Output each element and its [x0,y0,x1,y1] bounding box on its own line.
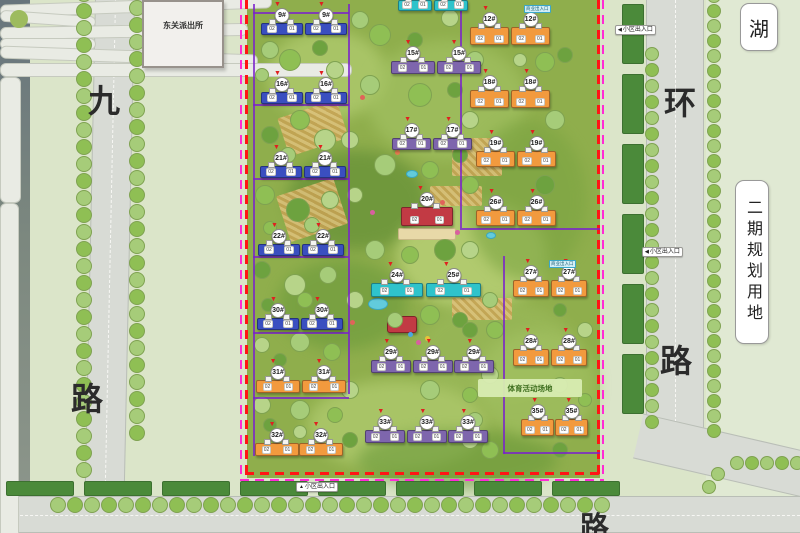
unit-chips: 0201 [300,446,342,454]
tree [129,323,145,339]
phase2-label-box: 二期规划用地 [735,180,769,344]
unit-chips: 0201 [402,216,452,224]
location-pin: ▼ [445,116,452,123]
tree [76,20,92,36]
tree [293,425,307,439]
unit-number: 02 [309,383,319,391]
unit-number: 02 [410,216,420,224]
building-30#: 0201▼30# [301,318,343,330]
tree [707,364,721,378]
tree [707,214,721,228]
tree [129,289,145,305]
tree [707,229,721,243]
tree [326,61,344,79]
unit-chips: 0201 [408,433,446,441]
road-name: 环 [664,78,696,124]
unit-chips: 0201 [262,94,302,102]
roof-core [264,439,271,445]
building-number-label: 26# [488,195,503,210]
unit-chips: 0201 [477,216,514,224]
building-28#: 0201▼28# [513,349,549,366]
tree [707,169,721,183]
tree [290,400,310,420]
building-number-label: 18# [482,75,497,90]
location-pin: ▼ [273,144,280,151]
unit-chips: 0201 [556,426,587,434]
building-17#: 0201▼17# [433,138,472,150]
tree [129,374,145,390]
building-24#: 0201▼24# [371,283,423,297]
location-pin: ▼ [269,421,276,428]
tree [645,271,659,285]
tree [645,95,659,109]
unit-number: 02 [516,98,526,106]
unit-chips: 0201 [434,140,471,148]
building-number-label: 20# [420,192,435,207]
building-33#: 0201▼33# [407,430,447,443]
commercial-entrance-label: 商业出入口 [549,260,576,268]
tree [220,497,236,513]
building-number-label: 22# [316,229,331,244]
tree [707,79,721,93]
tree [461,111,479,129]
building-20#: 0201▼20# [401,207,453,226]
building-17#: 0201▼17# [392,138,431,150]
building-slab: 0201▼19# [517,151,556,167]
tree [407,497,423,513]
tree [390,497,406,513]
building-slab: 0201▼33# [448,430,488,443]
building-number-label: 33# [420,415,435,430]
tree [434,239,456,261]
location-pin: ▼ [405,39,412,46]
building-22#: 0201▼22# [258,244,300,256]
building-slab: 0201▼29# [371,360,411,373]
location-pin: ▼ [274,1,281,8]
tree [645,143,659,157]
tree [545,110,565,130]
hedge-strip [6,481,74,496]
unit-chips: 0201 [471,35,508,43]
tree [297,292,313,308]
unit-number: 02 [380,287,390,295]
tree [645,335,659,349]
building-number-label: 17# [445,123,460,138]
entrance-marker: ▲小区出入口 [296,482,338,492]
tree [711,467,725,481]
location-pin: ▼ [318,1,325,8]
police-station-label: 东关派出所 [144,20,222,31]
tree [707,109,721,123]
tree [290,332,310,352]
location-pin: ▼ [488,188,495,195]
road-name: 路 [660,336,692,382]
unit-number: 01 [396,363,406,371]
tree [645,175,659,189]
location-pin: ▼ [482,5,489,12]
building-28#: 0201▼28# [551,349,587,366]
parcel-line [348,4,350,394]
building-number-label: 25# [446,268,461,283]
tree [482,292,498,308]
tree [424,497,440,513]
location-pin: ▼ [531,397,538,404]
building-slab: 0201▼15# [437,61,481,74]
tree [129,357,145,373]
tree [526,497,542,513]
hedge-strip [474,481,542,496]
unit-number: 02 [264,246,274,254]
sports-field-label: 体育活动场地 [478,379,582,397]
tree [645,47,659,61]
tree [553,303,567,317]
tree [129,153,145,169]
unit-chips: 0201 [306,25,346,33]
flower-accent [416,340,421,345]
building-slab: 0201▼31# [302,380,346,393]
tree [360,75,380,95]
unit-number: 02 [397,140,407,148]
parcel-line [253,332,349,334]
unit-chips: 0201 [477,157,514,165]
building-slab: 0201▼28# [551,349,587,366]
building-slab: 0201▼12# [511,27,550,45]
building-number-label: 29# [384,345,399,360]
building-26#: 0201▼26# [476,210,515,226]
tree [707,94,721,108]
tree [76,292,92,308]
unit-number: 02 [444,64,454,72]
unit-number: 02 [267,25,277,33]
lake-label-box: 湖 [740,3,778,51]
tree [76,343,92,359]
road-name: 路 [580,504,609,533]
building-slab: 0201 [434,0,468,11]
unit-number: 01 [541,157,551,165]
tree [129,221,145,237]
tree [76,275,92,291]
tree [552,442,568,458]
tree [129,170,145,186]
building-slab: 0201▼21# [260,166,302,178]
location-pin: ▼ [318,70,325,77]
building-16#: 0201▼16# [261,92,303,104]
unit-number: 02 [266,168,276,176]
flower-accent [408,332,413,337]
unit-number: 02 [262,446,272,454]
building-number-label: 17# [404,123,419,138]
tree [401,246,419,264]
boundary-line [602,0,604,480]
sports-field-text: 体育活动场地 [508,383,553,394]
building-31#: 0201▼31# [302,380,346,393]
parcel-line [253,397,349,399]
unit-number: 02 [475,98,485,106]
building-number-label: 22# [272,229,287,244]
tree [461,241,479,259]
tree [645,319,659,333]
parcel-line [460,228,600,230]
location-pin: ▼ [419,408,426,415]
tree [458,497,474,513]
tree [76,241,92,257]
tree [707,199,721,213]
building-slab: 0201▼29# [413,360,453,373]
building-slab: 0201▼20# [401,207,453,226]
boundary-line [245,472,600,475]
building-slab: 0201▼18# [470,90,509,108]
tree [369,24,391,46]
building-slab: 0201▼24# [371,283,423,297]
unit-chips: 0201 [259,246,299,254]
building-slab: 0201▼32# [299,443,343,456]
hedge-strip [622,144,644,204]
unit-chips: 0201 [393,140,430,148]
unit-number: 01 [331,25,341,33]
tree [760,456,774,470]
water-feature [406,170,418,178]
tree [645,415,659,429]
tree [707,64,721,78]
tree [76,3,92,19]
building-slab: 0201▼18# [511,90,550,108]
unit-number: 02 [413,433,423,441]
unit-number: 01 [438,363,448,371]
unit-number: 02 [435,287,445,295]
tree [441,9,459,27]
unit-number: 02 [398,64,408,72]
unit-chips: 0201 [522,426,553,434]
unit-number: 01 [535,287,545,295]
building-slab: 0201▼16# [305,92,347,104]
tree [374,154,396,176]
location-pin: ▼ [315,222,322,229]
entrance-arrow-icon: ◀ [618,27,622,33]
unit-number: 02 [306,446,316,454]
unit-number: 01 [390,433,400,441]
flower-accent [360,95,365,100]
unit-chips: 0201 [306,94,346,102]
building-31#: 0201▼31# [256,380,300,393]
location-pin: ▼ [404,116,411,123]
location-pin: ▼ [443,261,450,268]
unit-number: 01 [479,363,489,371]
parcel-line [253,12,349,14]
tree [707,139,721,153]
tree [288,497,304,513]
location-pin: ▼ [529,188,536,195]
unit-number: 02 [481,216,491,224]
building-number-label: 12# [482,12,497,27]
tree [535,175,555,195]
flower-accent [350,320,355,325]
unit-chips: 0201 [262,25,302,33]
tree [129,68,145,84]
unit-number: 02 [311,94,321,102]
unit-number: 01 [284,246,294,254]
tree [50,497,66,513]
tree [420,305,440,325]
location-pin: ▼ [387,261,394,268]
boundary-line [240,479,604,481]
building-number-label: 28# [524,334,539,349]
tree [76,224,92,240]
unit-number: 02 [371,433,381,441]
building-number-label: 30# [271,303,286,318]
building-number-label: 16# [275,77,290,92]
unit-number: 02 [525,426,535,434]
roof-core [433,203,440,209]
unit-chips: 0201 [512,35,549,43]
tree [261,41,279,59]
tree [707,124,721,138]
tree [129,238,145,254]
tree [707,394,721,408]
tree [707,379,721,393]
unit-chips: 0201 [303,383,345,391]
unit-number: 01 [535,356,545,364]
unit-chips: 0201 [256,446,298,454]
building-slab: 0201▼17# [433,138,472,150]
tree [707,424,721,438]
flower-accent [395,150,400,155]
unit-number: 01 [454,1,464,9]
tree [290,110,310,130]
unit-number: 02 [522,216,532,224]
building-29#: 0201▼29# [371,360,411,373]
building-number-label: 35# [530,404,545,419]
building-number-label: 21# [274,151,289,166]
location-pin: ▼ [460,408,467,415]
tree [707,259,721,273]
building-number-label: 31# [271,365,286,380]
building-number-label: 19# [488,136,503,151]
building-number-label: 29# [467,345,482,360]
unit-chips: 0201 [438,64,480,72]
unit-number: 01 [573,287,583,295]
tree [421,161,439,179]
location-pin: ▼ [270,358,277,365]
unit-number: 02 [267,94,277,102]
roof-core [400,57,407,63]
building-slab: 0201▼27# [513,280,549,297]
tree [645,127,659,141]
tree [135,497,151,513]
entrance-marker: ◀小区出入口 [615,25,656,35]
tree [730,456,744,470]
boundary-line [240,0,242,480]
tree [356,497,372,513]
building-slab: 0201▼35# [555,419,588,436]
tree [76,122,92,138]
tree [351,11,369,29]
tree [707,154,721,168]
tree [101,497,117,513]
tree [76,445,92,461]
tree [560,497,576,513]
site-plan-map: 0201▼9#0201▼9#0201▼16#0201▼16#0201▼21#02… [0,0,800,533]
tree [461,176,479,194]
unit-number: 02 [522,157,532,165]
building-9#: 0201▼9# [305,23,347,35]
parcel-line [460,0,462,228]
location-pin: ▼ [425,338,432,345]
unit-number: 01 [573,356,583,364]
building-29#: 0201▼29# [413,360,453,373]
tree [129,187,145,203]
unit-chips: 0201 [552,287,586,295]
tree [129,204,145,220]
unit-number: 01 [535,35,545,43]
unit-chips: 0201 [427,287,480,295]
tree [129,408,145,424]
tree [481,441,499,459]
tree [237,497,253,513]
tree [76,258,92,274]
tree [645,111,659,125]
unit-number: 02 [438,140,448,148]
tree [305,497,321,513]
boundary-line [597,0,600,475]
tree [76,462,92,478]
unit-number: 01 [328,246,338,254]
building-30#: 0201▼30# [257,318,299,330]
hedge-strip [622,74,644,134]
roof-core [265,376,272,382]
entrance-arrow-icon: ▲ [299,484,304,490]
entrance-arrow-icon: ◀ [645,249,649,255]
building-slab: 0201▼22# [302,244,344,256]
tree [279,49,301,71]
building-12#: 0201▼12# [470,27,509,45]
building-18#: 0201▼18# [470,90,509,108]
tree [254,337,270,353]
location-pin: ▼ [524,327,531,334]
location-pin: ▼ [316,358,323,365]
roof-core [308,439,315,445]
building-slab: 0201▼31# [256,380,300,393]
tree [129,136,145,152]
tree [462,387,478,403]
unit-chips: 0201 [414,363,452,371]
tree [76,173,92,189]
tree [707,334,721,348]
unit-number: 02 [556,356,566,364]
tree [129,391,145,407]
building-slab: 0201▼17# [392,138,431,150]
unit-number: 01 [327,320,337,328]
building-16#: 0201▼16# [305,92,347,104]
hedge-strip [552,481,620,496]
parcel-line [253,104,349,106]
building-number-label: 33# [461,415,476,430]
building-9#: 0201▼9# [261,23,303,35]
unit-number: 01 [418,1,428,9]
building-slab: 0201▼26# [476,210,515,226]
tree [645,255,659,269]
building-number-label: 32# [314,428,329,443]
flower-accent [370,210,375,215]
unit-number: 01 [541,216,551,224]
tree [513,53,527,67]
building-19#: 0201▼19# [517,151,556,167]
tree [577,322,593,338]
building-number-label: 33# [378,415,393,430]
building-number-label: 21# [318,151,333,166]
tree [707,319,721,333]
flower-accent [455,230,460,235]
hedge-strip [84,481,152,496]
